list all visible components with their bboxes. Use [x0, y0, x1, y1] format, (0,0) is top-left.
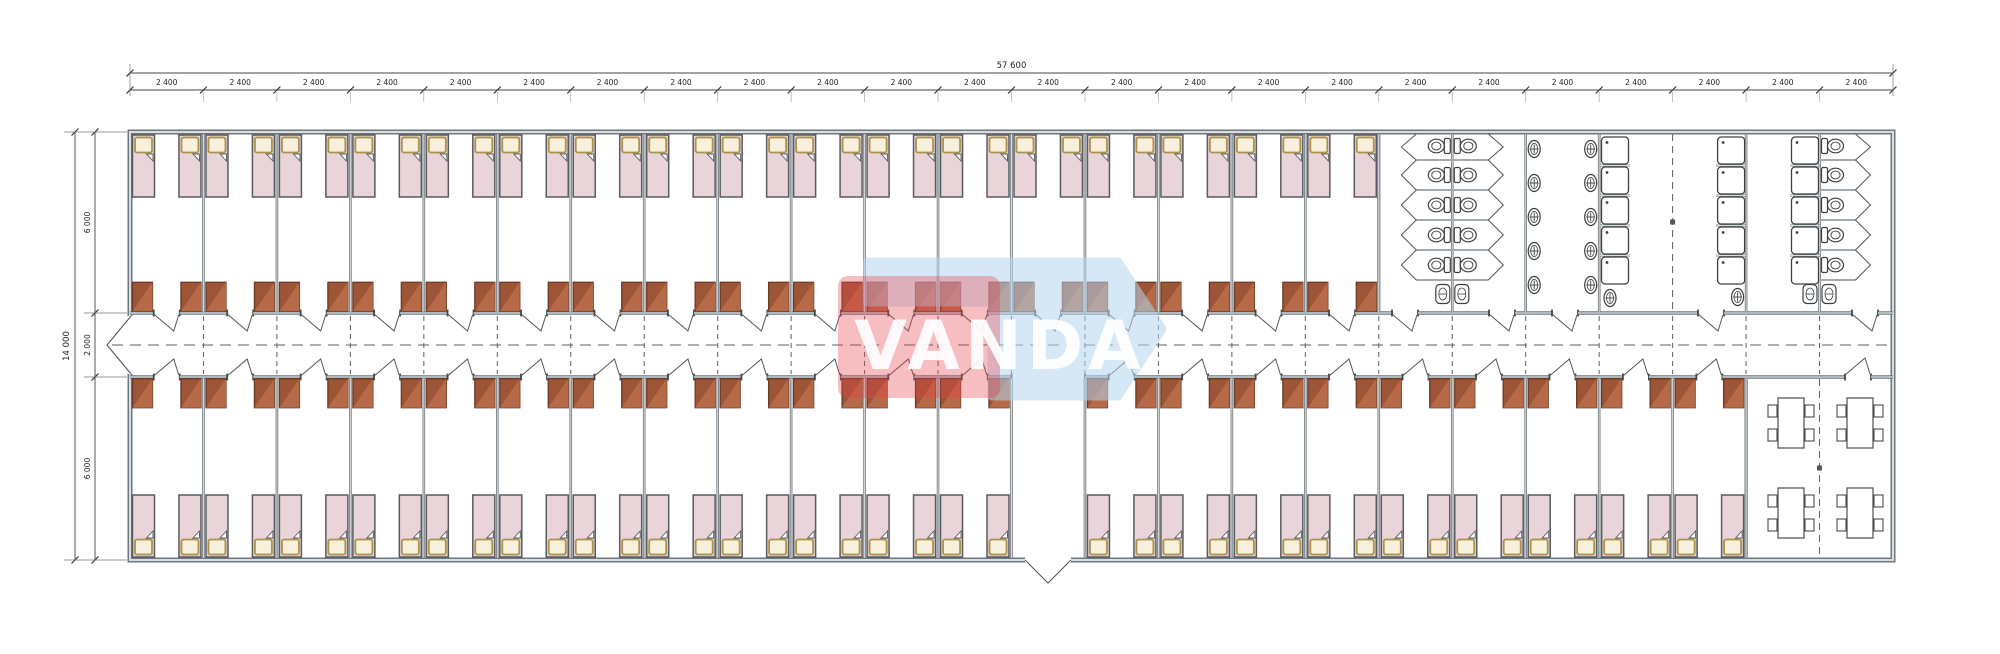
shower-drain: [1606, 231, 1609, 234]
shower-drain: [1796, 171, 1799, 174]
dim-label: 2 400: [744, 78, 766, 87]
pillow: [502, 138, 519, 153]
basin: [1528, 277, 1540, 294]
toilet: [1822, 258, 1844, 273]
bed: [399, 495, 421, 557]
wardrobe: [1528, 379, 1548, 408]
wardrobe: [1650, 379, 1670, 408]
wardrobe: [1234, 282, 1254, 311]
toilet: [1454, 198, 1476, 213]
chair: [1874, 429, 1883, 441]
chair: [1837, 429, 1846, 441]
bed: [1060, 135, 1082, 197]
shower-tray: [1718, 197, 1745, 224]
toilet-tank: [1822, 139, 1828, 154]
wardrobe: [769, 379, 789, 408]
dim-label: 14 000: [62, 331, 72, 361]
bed: [206, 495, 228, 557]
pillow: [429, 540, 446, 555]
dim-label: 6 000: [83, 458, 92, 480]
bed: [987, 135, 1009, 197]
wardrobe: [720, 379, 740, 408]
dim-label: 2 400: [376, 78, 398, 87]
pillow: [1283, 138, 1300, 153]
pillow: [1136, 138, 1153, 153]
chair: [1805, 495, 1814, 507]
pillow: [649, 540, 666, 555]
pillow: [769, 540, 786, 555]
chair: [1837, 405, 1846, 417]
shower-tray: [1792, 257, 1819, 284]
pillow: [1063, 138, 1080, 153]
pillow: [796, 138, 813, 153]
bed: [941, 495, 963, 557]
pillow: [1090, 138, 1107, 153]
shower-tray: [1792, 167, 1819, 194]
pillow: [843, 540, 860, 555]
toilet-bowl: [1428, 228, 1444, 242]
bed: [573, 135, 595, 197]
toilet: [1822, 228, 1844, 243]
pillow: [1237, 540, 1254, 555]
toilet-bowl: [1460, 139, 1476, 153]
bed: [473, 495, 495, 557]
bed: [1648, 495, 1670, 557]
shower-drain: [1722, 261, 1725, 264]
pillow: [255, 138, 272, 153]
chair: [1768, 429, 1777, 441]
wardrobe: [353, 379, 373, 408]
pillow: [990, 138, 1007, 153]
bed: [353, 495, 375, 557]
wardrobe: [181, 379, 201, 408]
basin: [1585, 243, 1597, 260]
pillow: [723, 138, 740, 153]
pillow: [475, 540, 492, 555]
bed: [620, 135, 642, 197]
bed: [179, 495, 201, 557]
chair: [1805, 429, 1814, 441]
wardrobe: [1161, 379, 1181, 408]
chair: [1874, 405, 1883, 417]
toilet-tank: [1822, 228, 1828, 243]
wardrobe: [1356, 282, 1376, 311]
shower-tray: [1602, 257, 1629, 284]
basin: [1528, 209, 1540, 226]
wardrobe: [328, 282, 348, 311]
pillow: [870, 138, 887, 153]
watermark: VANDA: [838, 262, 1162, 398]
wardrobe: [573, 282, 593, 311]
bed: [133, 495, 155, 557]
wardrobe: [426, 379, 446, 408]
toilet: [1428, 198, 1450, 213]
bed: [1281, 135, 1303, 197]
pillow: [181, 138, 198, 153]
chair: [1768, 405, 1777, 417]
toilet: [1822, 198, 1844, 213]
pillow: [135, 138, 152, 153]
wardrobe: [181, 282, 201, 311]
wardrobe: [500, 282, 520, 311]
bed: [326, 135, 348, 197]
bed: [426, 135, 448, 197]
wardrobe: [1455, 379, 1475, 408]
pillow: [649, 138, 666, 153]
pillow: [622, 138, 639, 153]
bed: [1722, 495, 1744, 557]
dim-label: 2 400: [1552, 78, 1574, 87]
wardrobe: [794, 282, 814, 311]
bed: [720, 135, 742, 197]
pillow: [282, 540, 299, 555]
pillow: [255, 540, 272, 555]
pillow: [282, 138, 299, 153]
wardrobe: [1602, 379, 1622, 408]
bed: [941, 135, 963, 197]
toilet-bowl: [1828, 228, 1844, 242]
toilet-tank: [1822, 258, 1828, 273]
wardrobe: [1209, 282, 1229, 311]
toilet: [1822, 168, 1844, 183]
pillow: [1210, 138, 1227, 153]
shower-tray: [1718, 167, 1745, 194]
chair: [1805, 405, 1814, 417]
bed: [1207, 495, 1229, 557]
wardrobe: [695, 282, 715, 311]
wardrobe: [1356, 379, 1376, 408]
dim-label: 2 400: [1258, 78, 1280, 87]
toilet-tank: [1454, 258, 1460, 273]
toilet-tank: [1822, 198, 1828, 213]
wardrobe: [1308, 379, 1328, 408]
basin: [1604, 290, 1616, 307]
chair: [1874, 519, 1883, 531]
wardrobe: [794, 379, 814, 408]
toilet: [1454, 228, 1476, 243]
dim-label: 2 400: [964, 78, 986, 87]
bed: [794, 135, 816, 197]
shower-drain: [1796, 261, 1799, 264]
bed: [279, 135, 301, 197]
wardrobe: [475, 379, 495, 408]
shower-tray: [1792, 137, 1819, 164]
toilet-bowl: [1828, 168, 1844, 182]
dim-label: 2 400: [1331, 78, 1353, 87]
bed: [647, 135, 669, 197]
wardrobe: [401, 282, 421, 311]
bed: [426, 495, 448, 557]
bed: [767, 135, 789, 197]
dim-label: 2 400: [1111, 78, 1133, 87]
bed: [840, 135, 862, 197]
wardrobe: [1577, 379, 1597, 408]
axis-marker: [1817, 466, 1822, 471]
wardrobe: [647, 379, 667, 408]
bed: [1575, 495, 1597, 557]
dim-label: 2 400: [1405, 78, 1427, 87]
bed: [252, 135, 274, 197]
bed: [252, 495, 274, 557]
toilet-bowl: [1828, 139, 1844, 153]
shower-drain: [1796, 231, 1799, 234]
pillow: [402, 540, 419, 555]
bed: [1161, 135, 1183, 197]
bed: [1308, 495, 1330, 557]
pillow: [916, 540, 933, 555]
shower-tray: [1718, 227, 1745, 254]
wardrobe: [1430, 379, 1450, 408]
pillow: [402, 138, 419, 153]
wardrobe: [1283, 379, 1303, 408]
pillow: [1384, 540, 1401, 555]
shower-drain: [1722, 201, 1725, 204]
bed: [794, 495, 816, 557]
bed: [840, 495, 862, 557]
bed: [1134, 135, 1156, 197]
basin: [1585, 175, 1597, 192]
bed: [1207, 135, 1229, 197]
wardrobe: [500, 379, 520, 408]
pillow: [1210, 540, 1227, 555]
pillow: [1504, 540, 1521, 555]
pillow: [622, 540, 639, 555]
floor-plan-canvas: VANDA57 6002 4002 4002 4002 4002 4002 40…: [0, 0, 2000, 654]
basin: [1528, 175, 1540, 192]
bed: [867, 495, 889, 557]
wardrobe: [1209, 379, 1229, 408]
toilet-tank: [1454, 228, 1460, 243]
pillow: [1090, 540, 1107, 555]
bed: [767, 495, 789, 557]
dim-label: 57 600: [997, 61, 1027, 71]
pillow: [1357, 540, 1374, 555]
bed: [1087, 495, 1109, 557]
shower-drain: [1606, 201, 1609, 204]
wardrobe: [1381, 379, 1401, 408]
pillow: [696, 540, 713, 555]
dim-label: 2 400: [450, 78, 472, 87]
pillow: [843, 138, 860, 153]
axis-marker: [1670, 220, 1675, 225]
shower-tray: [1602, 137, 1629, 164]
dim-label: 2 400: [523, 78, 545, 87]
dim-label: 2 400: [1184, 78, 1206, 87]
wardrobe: [254, 379, 274, 408]
toilet: [1428, 168, 1450, 183]
shower-drain: [1722, 141, 1725, 144]
pillow: [916, 138, 933, 153]
toilet: [1454, 168, 1476, 183]
pillow: [1430, 540, 1447, 555]
wardrobe: [279, 379, 299, 408]
pillow: [502, 540, 519, 555]
bed: [1455, 495, 1477, 557]
pillow: [870, 540, 887, 555]
shower-tray: [1718, 137, 1745, 164]
entrance-gap: [1025, 556, 1071, 564]
floor-plan: VANDA57 6002 4002 4002 4002 4002 4002 40…: [0, 0, 2000, 654]
wardrobe: [1503, 379, 1523, 408]
pillow: [1163, 138, 1180, 153]
wardrobe: [401, 379, 421, 408]
bed: [1354, 495, 1376, 557]
bed: [867, 135, 889, 197]
dim-label: 2 400: [156, 78, 178, 87]
shower-drain: [1796, 141, 1799, 144]
table: [1778, 488, 1804, 538]
wardrobe: [1283, 282, 1303, 311]
toilet: [1822, 139, 1844, 154]
chair: [1837, 495, 1846, 507]
bed: [279, 495, 301, 557]
pillow: [355, 540, 372, 555]
basin: [1528, 141, 1540, 158]
dim-label: 6 000: [83, 212, 92, 234]
wardrobe: [254, 282, 274, 311]
table: [1847, 398, 1873, 448]
pillow: [1017, 138, 1034, 153]
bed: [1528, 495, 1550, 557]
pillow: [769, 138, 786, 153]
wardrobe: [622, 379, 642, 408]
dim-label: 2 000: [83, 334, 92, 356]
shower-tray: [1792, 197, 1819, 224]
bed: [1354, 135, 1376, 197]
toilet-tank: [1444, 258, 1450, 273]
bed: [1161, 495, 1183, 557]
chair: [1805, 519, 1814, 531]
pillow: [1651, 540, 1668, 555]
toilet-bowl: [1460, 258, 1476, 272]
toilet-bowl: [1828, 198, 1844, 212]
wardrobe: [475, 282, 495, 311]
toilet-tank: [1454, 198, 1460, 213]
toilet-tank: [1444, 139, 1450, 154]
shower-drain: [1606, 171, 1609, 174]
pillow: [328, 138, 345, 153]
wardrobe: [206, 379, 226, 408]
pillow: [1457, 540, 1474, 555]
toilet: [1454, 139, 1476, 154]
wardrobe: [622, 282, 642, 311]
table: [1778, 398, 1804, 448]
pillow: [576, 540, 593, 555]
toilet-tank: [1454, 139, 1460, 154]
shower-tray: [1718, 257, 1745, 284]
wardrobe: [1234, 379, 1254, 408]
pillow: [1283, 540, 1300, 555]
wardrobe: [1308, 282, 1328, 311]
dim-label: 2 400: [1625, 78, 1647, 87]
bed: [1308, 135, 1330, 197]
dim-label: 2 400: [817, 78, 839, 87]
bed: [620, 495, 642, 557]
dim-label: 2 400: [891, 78, 913, 87]
toilet-tank: [1444, 198, 1450, 213]
shower-tray: [1602, 227, 1629, 254]
toilet-bowl: [1428, 168, 1444, 182]
dim-label: 2 400: [1037, 78, 1059, 87]
bed: [546, 495, 568, 557]
bed: [206, 135, 228, 197]
shower-tray: [1602, 197, 1629, 224]
bed: [399, 135, 421, 197]
bed: [500, 135, 522, 197]
pillow: [1531, 540, 1548, 555]
pillow: [429, 138, 446, 153]
bed: [1134, 495, 1156, 557]
toilet: [1428, 228, 1450, 243]
bed: [1675, 495, 1697, 557]
bed: [1381, 495, 1403, 557]
wardrobe: [279, 282, 299, 311]
pillow: [181, 540, 198, 555]
bed: [326, 495, 348, 557]
wardrobe: [720, 282, 740, 311]
bed: [573, 495, 595, 557]
toilet-bowl: [1460, 168, 1476, 182]
pillow: [1136, 540, 1153, 555]
wardrobe: [353, 282, 373, 311]
wardrobe: [1724, 379, 1744, 408]
pillow: [943, 138, 960, 153]
bed: [914, 135, 936, 197]
wardrobe: [548, 379, 568, 408]
pillow: [355, 138, 372, 153]
bed: [133, 135, 155, 197]
wardrobe: [328, 379, 348, 408]
dim-label: 2 400: [229, 78, 251, 87]
toilet-bowl: [1828, 258, 1844, 272]
wardrobe: [1161, 282, 1181, 311]
wardrobe: [647, 282, 667, 311]
wardrobe: [206, 282, 226, 311]
pillow: [1577, 540, 1594, 555]
dim-label: 2 400: [303, 78, 325, 87]
chair: [1874, 495, 1883, 507]
basin: [1585, 277, 1597, 294]
pillow: [475, 138, 492, 153]
pillow: [576, 138, 593, 153]
wardrobe: [426, 282, 446, 311]
bed: [1014, 135, 1036, 197]
dim-label: 2 400: [597, 78, 619, 87]
dim-label: 2 400: [1699, 78, 1721, 87]
shower-drain: [1722, 171, 1725, 174]
toilet-bowl: [1460, 198, 1476, 212]
table: [1847, 488, 1873, 538]
pillow: [723, 540, 740, 555]
bed: [179, 135, 201, 197]
pillow: [943, 540, 960, 555]
dim-label: 2 400: [1478, 78, 1500, 87]
toilet-bowl: [1460, 228, 1476, 242]
bed: [693, 495, 715, 557]
dim-label: 2 400: [1846, 78, 1868, 87]
bed: [914, 495, 936, 557]
toilet-bowl: [1428, 139, 1444, 153]
shower-drain: [1606, 141, 1609, 144]
wardrobe: [769, 282, 789, 311]
pillow: [1310, 138, 1327, 153]
bed: [1501, 495, 1523, 557]
toilet-bowl: [1428, 198, 1444, 212]
pillow: [208, 540, 225, 555]
bed: [1087, 135, 1109, 197]
wardrobe: [573, 379, 593, 408]
wardrobe: [133, 379, 153, 408]
